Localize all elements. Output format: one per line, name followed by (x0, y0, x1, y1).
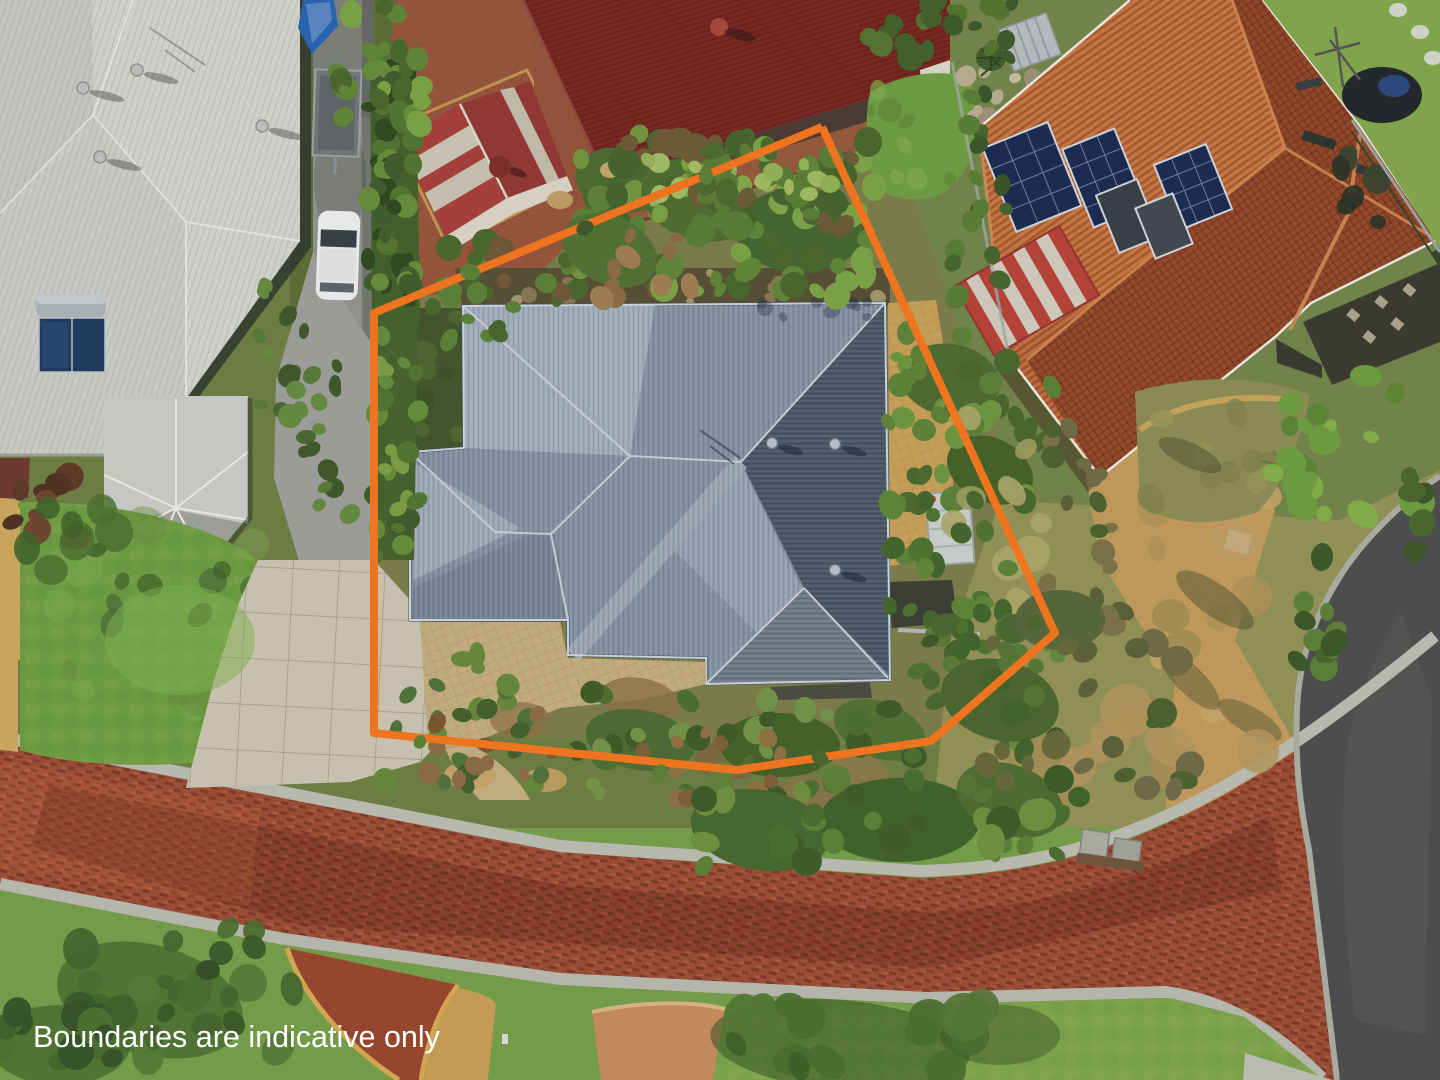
svg-text:Boundaries are indicative only: Boundaries are indicative only (33, 1020, 441, 1054)
